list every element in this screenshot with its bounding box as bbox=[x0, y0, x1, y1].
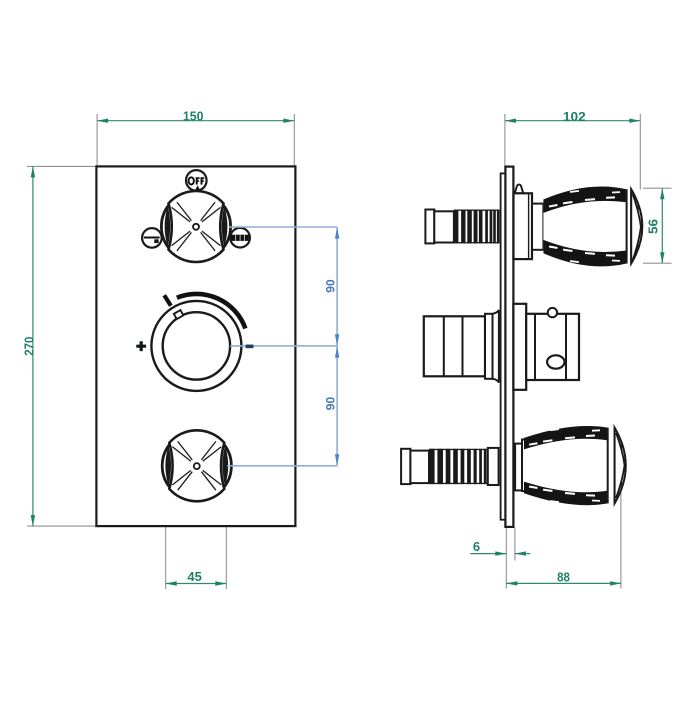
svg-text:45: 45 bbox=[187, 569, 201, 584]
svg-text:90: 90 bbox=[323, 397, 337, 411]
svg-text:270: 270 bbox=[22, 337, 37, 356]
svg-text:88: 88 bbox=[557, 570, 570, 585]
svg-text:56: 56 bbox=[646, 219, 661, 234]
svg-text:102: 102 bbox=[563, 109, 586, 124]
svg-text:150: 150 bbox=[183, 108, 204, 123]
svg-text:6: 6 bbox=[473, 539, 480, 554]
svg-text:90: 90 bbox=[323, 279, 337, 293]
